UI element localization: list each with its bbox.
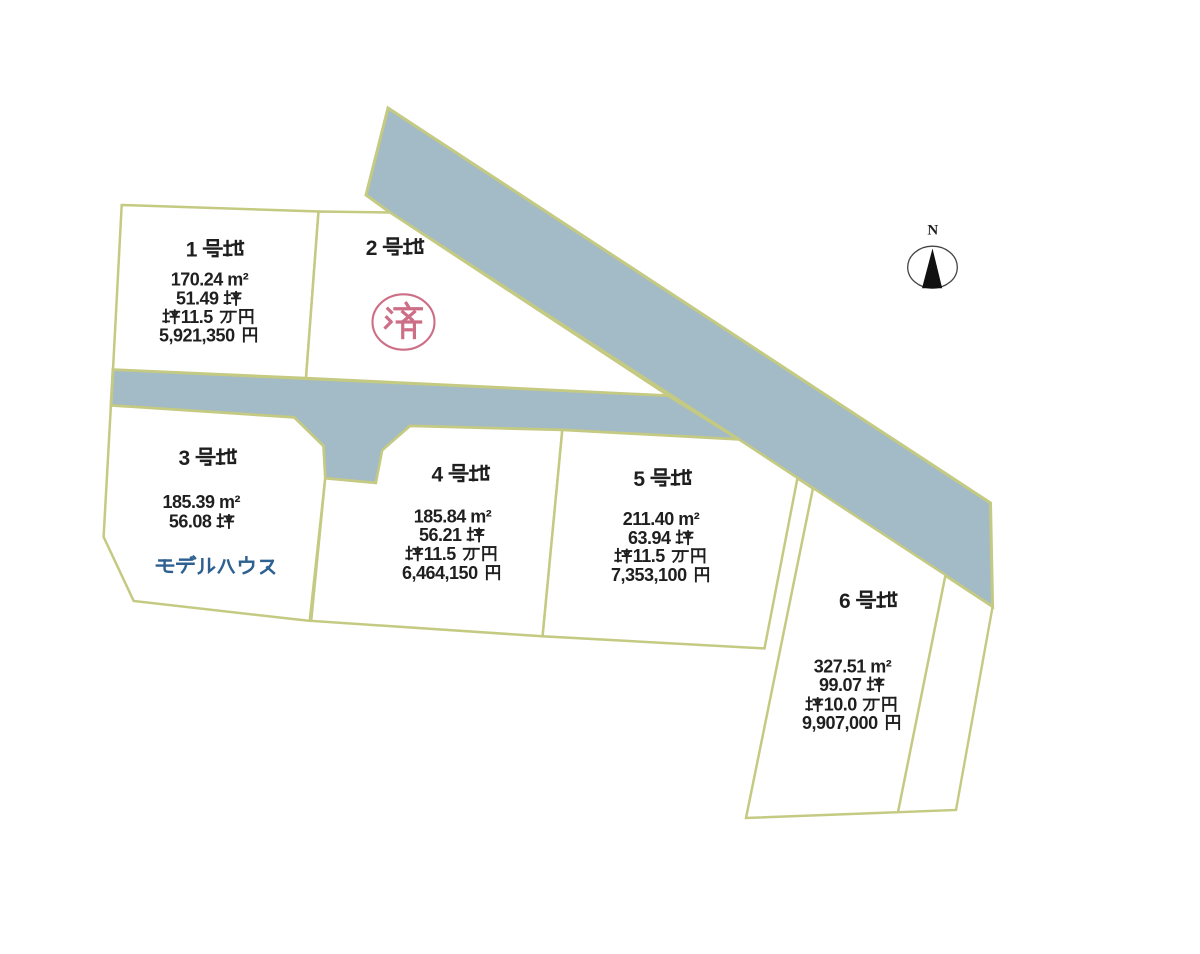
svg-text:6,464,150: 6,464,150 xyxy=(402,563,478,583)
svg-text:51.49: 51.49 xyxy=(176,289,219,309)
svg-text:56.08: 56.08 xyxy=(169,512,212,532)
svg-text:63.94: 63.94 xyxy=(628,528,671,548)
svg-text:11.5: 11.5 xyxy=(424,544,457,564)
svg-text:327.51 m²: 327.51 m² xyxy=(814,657,892,677)
svg-text:99.07: 99.07 xyxy=(819,675,862,695)
svg-text:2: 2 xyxy=(366,237,377,260)
svg-text:6: 6 xyxy=(839,590,850,613)
svg-text:4: 4 xyxy=(432,464,444,487)
svg-text:N: N xyxy=(927,223,938,239)
svg-text:9,907,000: 9,907,000 xyxy=(802,713,878,733)
svg-text:11.5: 11.5 xyxy=(633,546,666,566)
svg-text:170.24 m²: 170.24 m² xyxy=(171,270,249,290)
svg-text:3: 3 xyxy=(179,447,190,470)
svg-text:185.39 m²: 185.39 m² xyxy=(163,492,241,512)
svg-text:211.40 m²: 211.40 m² xyxy=(623,509,700,529)
svg-text:5: 5 xyxy=(633,468,645,491)
svg-text:56.21: 56.21 xyxy=(419,525,462,545)
svg-text:5,921,350: 5,921,350 xyxy=(159,325,235,345)
svg-text:10.0: 10.0 xyxy=(824,695,858,715)
svg-text:11.5: 11.5 xyxy=(181,307,214,327)
svg-text:185.84 m²: 185.84 m² xyxy=(414,507,492,527)
svg-text:7,353,100: 7,353,100 xyxy=(611,565,687,585)
svg-text:1: 1 xyxy=(186,239,198,262)
